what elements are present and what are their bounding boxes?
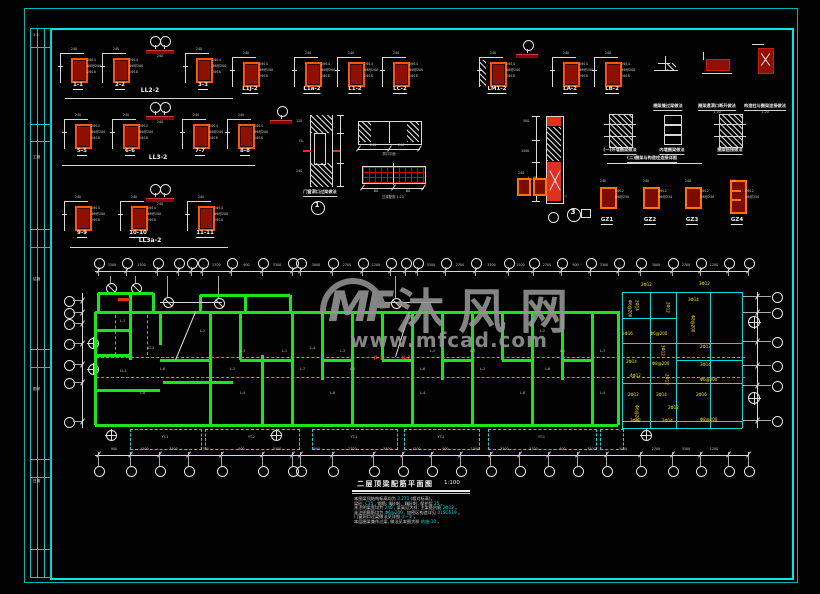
rebar-label-yellow: 2Φ12 [665,302,669,313]
drawing-notes: 本图梁顶结构标高均为 3.270 (相对标高)。梁砼: C25 , 钢筋: Ⅰ级… [354,497,462,525]
dim-line [182,119,183,149]
dim-line [112,119,113,149]
beam-dashed [96,377,745,378]
grid-bubble [398,466,409,477]
rebar-label-yellow: 3Φ14 [700,363,711,367]
detail-line [702,73,732,74]
grid-bubble [772,337,783,348]
rebar-text: Φ6@200 [91,131,105,135]
dim-text: 3000 [652,264,660,268]
rebar-text: 2Φ18 [321,75,330,79]
rebar-text: Φ6@200 [621,69,635,73]
wall-green [160,359,210,362]
grid-bubble [724,466,735,477]
marker-stem [527,49,528,53]
dim-text: 3300 [600,264,608,268]
dim-line [64,201,88,202]
dim-text: 240 [157,121,163,125]
section-label: L1J-2 [242,87,258,94]
detail-caption: 门窗洞口过梁做法 [303,190,337,197]
dim-line [294,57,318,58]
section-label: LB-2 [605,87,619,94]
section-marker-circle [277,106,288,117]
dim-text: 240 [730,180,736,184]
wall-hatch-detail [609,114,633,148]
rebar-text: Φ6@200 [209,131,223,135]
rebar-text: Φ6@200 [506,69,520,73]
wall-green [291,312,294,425]
ref-box [581,209,591,218]
wall-green [95,389,160,392]
column-section-box [393,62,410,87]
dim-text: 3300 [427,264,435,268]
grid-bubble [772,308,783,319]
wall-green [200,294,290,297]
column-section-box [196,58,213,83]
rebar-text: 2Φ18 [209,137,218,141]
rebar-label-yellow: 3Φ14 [688,298,699,302]
dim-tick [532,201,540,202]
column-section-box [131,206,148,231]
title-underline [352,490,470,492]
gz-mini-section [533,178,547,196]
column-section-box [563,62,580,87]
axis-cross-bubble [88,364,99,375]
end-hatch [407,122,419,142]
sub-grid-bubble [214,298,225,309]
grid-bubble [486,466,497,477]
beam-label: L-6 [545,368,550,372]
column-hatch [547,127,561,161]
dim-line-bottom [95,455,748,456]
section-label: 9-9 [77,231,87,238]
balcony-label: YT-2 [437,436,444,440]
rebar-text: 2Φ14 [259,63,268,67]
dim-tick [118,214,123,215]
rebar-text: 2Φ14 [364,63,373,67]
caption-underline [607,163,702,164]
grid-bubble [515,466,526,477]
dim-text: 2700 [456,264,464,268]
detail-line [654,70,678,71]
section-marker-circle [160,184,171,195]
drawing-scale: 1:100 [444,480,460,486]
wall-cyan [622,318,676,319]
rebar-text: 2Φ18 [139,137,148,141]
marker-stem [155,45,156,49]
wall-green [129,293,132,312]
axis-cross-bubble [88,338,99,349]
section-label: 11-11 [196,231,214,238]
dim-line [120,201,121,231]
grid-bubble [155,466,166,477]
detail-caption: (一)外墙圈梁做法 [603,148,636,155]
grid-bubble [64,360,75,371]
beam-label: L-6 [160,368,165,372]
column-section-box [305,62,322,87]
dim-text: 240 [131,196,137,200]
dim-text: 240 [238,114,244,118]
balcony-label: YT-1 [538,436,545,440]
gz-label: GZ3 [686,218,698,225]
section-marker-circle [523,40,534,51]
dim-tick [180,132,185,133]
marker-stem [281,115,282,119]
dim-text: 240 [243,52,249,56]
dim-line [64,119,88,120]
wall-green [244,295,247,312]
rebar-text: 2Φ18 [364,75,373,79]
section-label: LA-2 [563,87,577,94]
dim-text: 60 [374,190,378,194]
axis-cross-bubble [641,430,652,441]
column-section-box [238,124,255,149]
dim-tick [100,66,105,67]
dim-tick [550,70,555,71]
rebar-mark [303,150,311,152]
note-line: 本层圈梁兼作过梁, 做法见本图大样 结施-10 。 [354,520,462,525]
dim-text: 300 [523,120,529,124]
group-underline [62,165,255,166]
center-line [389,121,390,143]
rebar-text: Φ6@200 [91,213,105,217]
grid-bubble [602,466,613,477]
detail-rect [664,125,682,135]
dim-text: 1500 [137,264,145,268]
dim-line [185,53,186,83]
wall-green [199,295,202,312]
wall-green [129,312,132,360]
dim-line [232,57,256,58]
rebar-text: 2Φ14 [214,207,223,211]
rebar-label-yellow: Φ6@200 [650,332,667,336]
wall-green [97,293,100,312]
column-section-box [243,62,260,87]
rebar-text: 2Φ18 [409,75,418,79]
callout-number: 3 [571,210,576,215]
detail-line [703,52,704,60]
beam-label: L-2 [200,330,205,334]
section-label: 3-3 [198,83,208,90]
rebar-text: 2Φ14 [91,125,100,129]
rebar-text: 2Φ14 [209,125,218,129]
dim-text: 1200 [372,264,380,268]
beam-label-red: JL-1 [374,356,382,361]
gz-label: GZ2 [644,218,656,225]
rebar-text: Φ6@200 [259,69,273,73]
dim-line [382,57,406,58]
dim-line [594,57,618,58]
marker-stem [164,193,165,197]
rebar-text: 2Φ18 [506,75,515,79]
dim-line [227,119,228,149]
wall-cyan [622,428,742,429]
grid-bubble [64,378,75,389]
dim-text: 1200 [710,264,718,268]
wall-cyan [622,292,742,293]
wall-green [163,381,233,384]
dim-text: 240 [398,144,404,148]
grid-bubble [456,466,467,477]
dim-tick [337,186,344,187]
section-marker-circle [160,102,171,113]
grid-bubble [64,296,75,307]
detail-line [714,124,746,125]
rebar-label-yellow: 2Φ14 [662,419,673,423]
dim-line [552,57,553,87]
section-label: LM1-2 [488,87,507,94]
wall-green [152,293,155,312]
dim-text: 900 [111,448,117,452]
dim-tick [335,70,340,71]
rebar-label-yellow: Φ6@200 [700,378,717,382]
lintel-elevation [362,166,426,184]
section-group-label: LL3a-2 [139,239,162,244]
section-label: LC-2 [393,87,407,94]
dim-text: 240 [113,48,119,52]
wall-hatch [480,60,486,86]
dim-line [182,119,206,120]
wall-hatch [311,163,332,187]
column-red-top [547,117,561,126]
bubble-stem [135,276,136,283]
rebar-text: Φ6@200 [212,65,226,69]
dim-line [340,115,341,187]
dim-line [552,57,576,58]
section-label: 7-7 [195,149,205,156]
wall-green [442,359,472,362]
dim-text: 240 [370,144,376,148]
rebar-text: Φ6@250 [745,196,759,200]
rebar-text: 2Φ14 [409,63,418,67]
dim-tick [225,132,230,133]
wall-green [95,424,618,427]
triangle-mark: ◁ [564,195,567,199]
detail-rect [664,115,682,125]
dim-text: 240 [393,52,399,56]
dim-line [337,57,338,87]
dim-line [294,57,295,87]
rebar-text: 2Φ14 [91,207,100,211]
rebar-text: 2Φ12 [700,190,709,194]
rebar-label-yellow: Φ8@200 [700,418,717,422]
detail-caption: 圈梁搭接做法 [717,148,742,155]
section-label: 2-2 [115,83,125,90]
dim-text: 240 [196,48,202,52]
dim-line [60,53,84,54]
rebar-label-yellow: 3Φ14 [656,393,667,397]
dim-text: 3300 [487,264,495,268]
group-underline [65,98,233,99]
rebar-text: 2Φ18 [129,71,138,75]
grid-bubble [744,466,755,477]
dim-text: 240 [305,52,311,56]
dim-text: 240 [198,196,204,200]
beam-label: L-2 [230,368,235,372]
beam-label: L-8 [140,392,145,396]
grid-bubble [544,466,555,477]
dim-text: 2700 [212,264,220,268]
rebar-text: 2Φ12 [745,190,754,194]
wall-green [562,359,592,362]
center-line [393,163,394,185]
wall-hatch [311,115,332,133]
column-section-box [75,124,92,149]
rebar-text: Φ6@200 [147,213,161,217]
dim-text: 1200 [710,448,718,452]
balcony-label: YT-1 [161,436,168,440]
rebar-text: 2Φ12 [615,190,624,194]
grid-bubble [126,466,137,477]
rebar-label-yellow: Φ8@200 [652,362,669,366]
gz-label: GZ1 [601,218,613,225]
dim-text: 240 [296,170,302,174]
rebar-text: 2Φ18 [579,75,588,79]
grid-bubble [64,308,75,319]
beam-dashed [96,357,745,358]
rebar-label-yellow: 2Φ14 [634,300,638,311]
dim-text: 240 [685,180,691,184]
rebar-text: 2Φ14 [212,59,221,63]
wall-cyan [622,343,742,344]
beam-label: L-4 [240,392,245,396]
rebar-text: 2Φ18 [259,75,268,79]
detail-line [604,136,636,137]
dim-text: 900 [243,264,249,268]
grid-bubble [258,466,269,477]
rebar-text: 2Φ18 [91,137,100,141]
gz-label: GZ4 [731,218,743,225]
rebar-text: 2Φ14 [139,125,148,129]
dim-tick [532,140,540,141]
detail-line [665,56,666,71]
dim-text: 240 [71,48,77,52]
wall-green [95,329,130,332]
dim-text: 1500 [516,264,524,268]
grid-bubble [668,466,679,477]
gz-rung [732,199,741,201]
column-section-box [605,62,622,87]
grid-bubble [184,466,195,477]
wall-green [502,359,532,362]
rebar-text: 2Φ14 [621,63,630,67]
lintel-section [706,59,730,71]
dim-tick [58,66,63,67]
dim-text: 3300 [682,448,690,452]
dim-tick [62,214,67,215]
beam-label-red: JL-2 [402,356,410,361]
dim-tick [532,162,540,163]
rebar-label-yellow: 2Φ16 [696,393,707,397]
marker-beam-strip [270,120,292,124]
balcony-label: YT-1 [350,436,357,440]
watermark: MF 沐风网 www.mfcad.com [318,270,628,356]
detail-line [752,44,764,45]
dim-text: 240 [348,52,354,56]
beam-label: L-6 [420,368,425,372]
dim-text: 2700 [543,264,551,268]
dim-line [60,53,61,83]
grid-bubble [772,381,783,392]
beam-label: L-4 [420,392,425,396]
marker-stem [155,193,156,197]
dim-text: 3300 [108,264,116,268]
axis-cross-bubble [748,392,760,404]
rebar-text: Φ6@250 [700,196,714,200]
wall-green [240,359,292,362]
rebar-text: 2Φ14 [579,63,588,67]
rebar-label-yellow: 4Φ12 [630,374,641,378]
detail-caption: 圈梁兼过梁做法 [653,104,682,111]
wall-hatch-detail [719,114,743,148]
dim-line [120,201,144,202]
rebar-text: 2Φ18 [212,71,221,75]
beam-label: L-8 [520,392,525,396]
grid-bubble [573,466,584,477]
section-marker-circle [160,36,171,47]
inner-dim-line [160,302,222,303]
dim-line [479,57,503,58]
dim-line [227,119,251,120]
dim-tick [417,145,422,151]
wall-green [98,292,153,295]
rebar-label-yellow: 2Φ12 [700,345,711,349]
dim-text: 3000 [312,264,320,268]
marker-stem [164,45,165,49]
section-label: L1a-2 [303,87,320,94]
dim-line [102,53,103,83]
dim-tick [337,133,344,134]
grid-bubble [772,292,783,303]
wall-cyan [650,292,651,428]
watermark-url: www.mfcad.com [350,328,548,352]
rebar-text: Φ6@200 [214,213,228,217]
axis-cross-bubble [106,430,117,441]
note-text: 结施-10 [421,519,436,524]
section-label: L1-2 [348,87,361,94]
dim-line [185,53,209,54]
dim-text: 3300 [273,264,281,268]
dim-text: 240 [563,52,569,56]
rebar-text: Φ6@200 [409,69,423,73]
dim-line [64,201,65,231]
grid-bubble [64,319,75,330]
dim-text: 2700 [343,264,351,268]
dim-text: 240 [605,52,611,56]
beam-dashed [115,315,116,355]
rebar-text: 2Φ12 [658,190,667,194]
rebar-text: 2Φ18 [91,219,100,223]
rebar-text: 2Φ18 [254,137,263,141]
dim-tick [185,214,190,215]
beam-label: L-2 [480,368,485,372]
balcony-label: YT-2 [248,436,255,440]
rebar-label-yellow: 2Φ12 [628,393,639,397]
beam-label: L-2 [350,368,355,372]
detail-hatch [667,63,676,70]
section-label: 6-6 [125,149,135,156]
wall-green [261,355,264,425]
dim-line [102,53,126,54]
rebar-label-yellow: Φ8@200 [690,315,694,332]
detail-caption: 内墙圈梁做法 [659,148,684,155]
dim-tick [110,132,115,133]
dim-text: 900 [572,264,578,268]
dim-line [337,57,361,58]
dim-tick [292,70,297,71]
grid-bubble [636,466,647,477]
dim-line [64,119,65,149]
